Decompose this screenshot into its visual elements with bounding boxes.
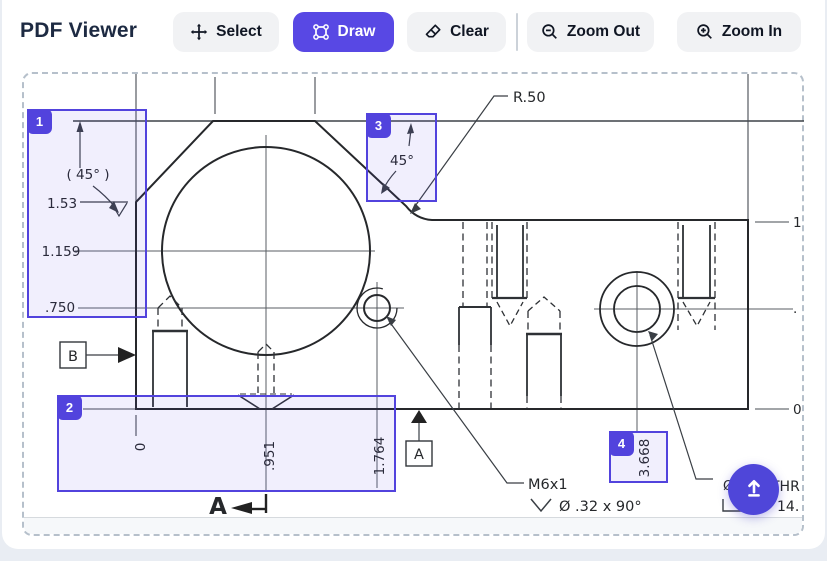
toolbar-separator [516, 13, 518, 51]
extension-lines [73, 74, 804, 436]
annotation-badge-4: 4 [609, 431, 634, 456]
csk-note: Ø .32 x 90° [559, 499, 642, 515]
move-icon [190, 23, 208, 41]
magnifier-plus-icon [696, 23, 714, 41]
thread-note: M6x1 [528, 477, 568, 493]
draw-button[interactable]: Draw [293, 12, 394, 52]
upload-arrow-icon [741, 475, 767, 504]
part-outline [136, 121, 748, 409]
eraser-icon [424, 23, 442, 41]
annotation-badge-2: 2 [57, 395, 82, 420]
annotation-badge-3: 3 [366, 113, 391, 138]
right-ordinate-bottom: 0 [793, 402, 802, 418]
cbore-fragment: 14. [777, 499, 799, 515]
annotation-badge-1: 1 [27, 109, 52, 134]
annotation-box-2[interactable]: 2 [57, 395, 396, 492]
right-ordinate-top: 1 [793, 215, 802, 231]
select-button[interactable]: Select [173, 12, 279, 52]
datum-a-label: A [414, 447, 424, 463]
scroll-top-fab-button[interactable] [728, 464, 779, 515]
clear-button-label: Clear [450, 23, 489, 41]
annotation-box-1[interactable]: 1 [27, 109, 147, 318]
section-a-label: A [209, 494, 227, 515]
hidden-holes [152, 222, 715, 409]
zoom-in-button-label: Zoom In [722, 23, 782, 41]
right-ordinate-mid: . [793, 301, 797, 317]
magnifier-minus-icon [541, 23, 559, 41]
datum-b-label: B [68, 349, 78, 365]
clear-button[interactable]: Clear [407, 12, 506, 52]
draw-button-label: Draw [338, 23, 376, 41]
page-gap [24, 517, 802, 534]
radius-note: R.50 [513, 90, 546, 106]
draw-rectangle-icon [312, 23, 330, 41]
page-title: PDF Viewer [20, 19, 137, 43]
select-button-label: Select [216, 23, 262, 41]
annotation-box-3[interactable]: 3 [366, 113, 437, 202]
zoom-out-button[interactable]: Zoom Out [527, 12, 654, 52]
zoom-out-button-label: Zoom Out [567, 23, 640, 41]
annotation-box-4[interactable]: 4 [609, 431, 668, 483]
zoom-in-button[interactable]: Zoom In [677, 12, 801, 52]
